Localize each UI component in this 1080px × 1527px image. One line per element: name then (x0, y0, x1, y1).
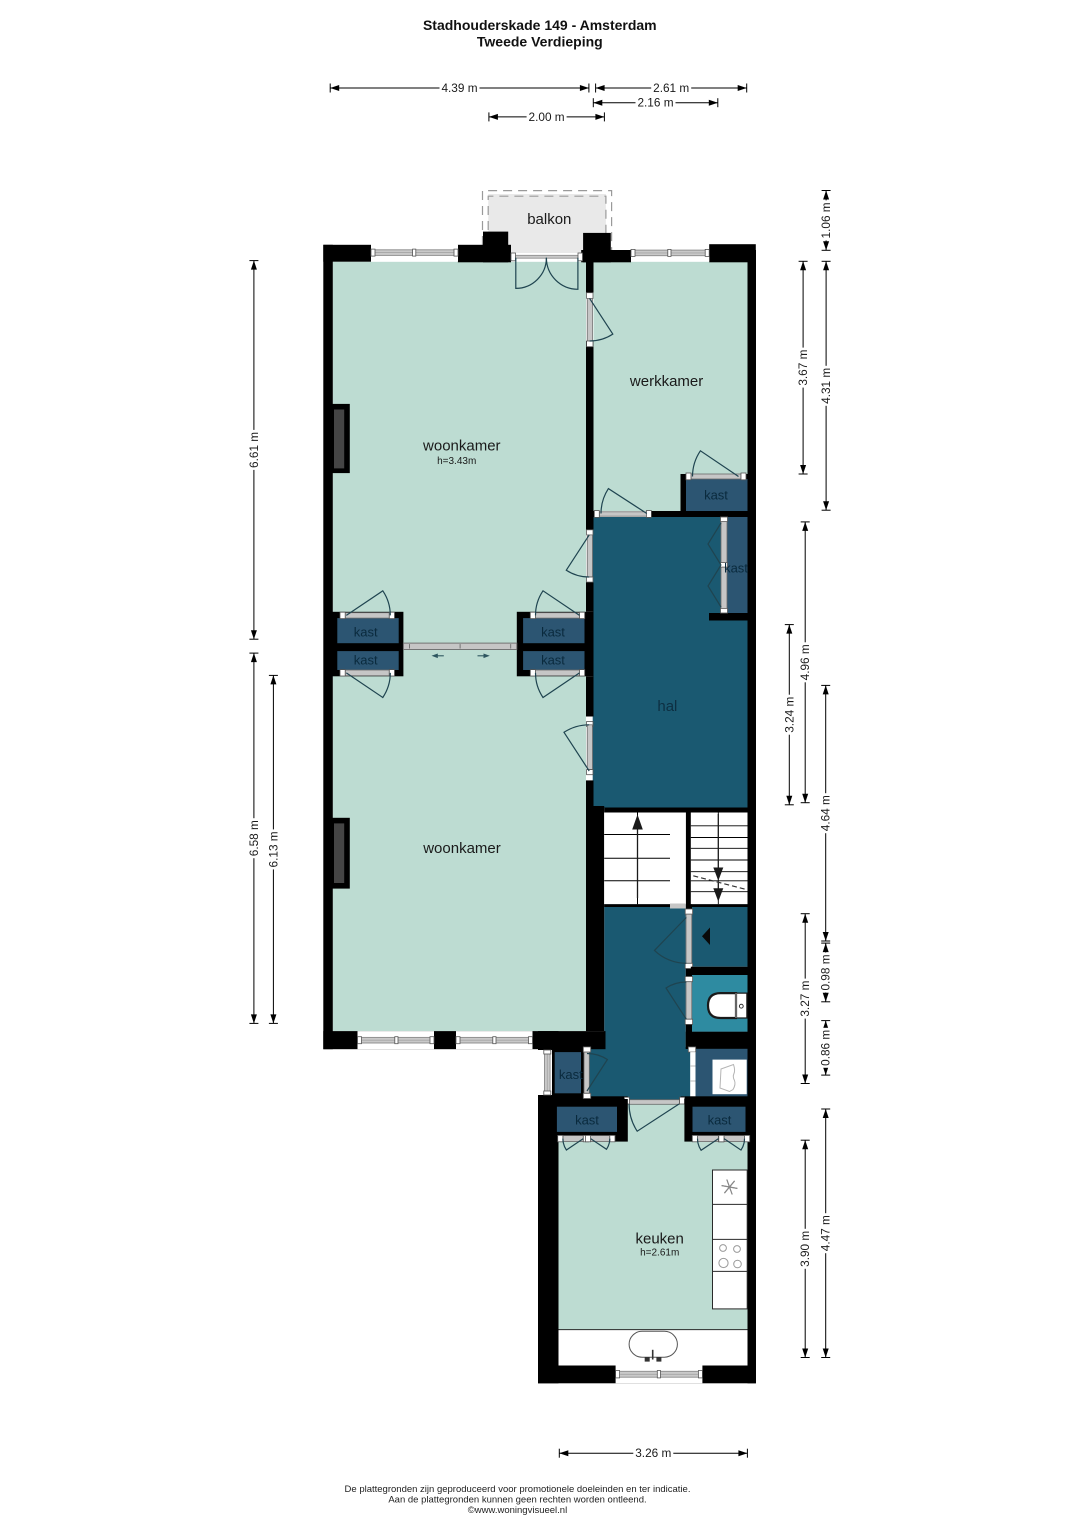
svg-text:kast: kast (354, 625, 378, 640)
svg-text:3.90 m: 3.90 m (798, 1231, 812, 1267)
svg-text:woonkamer: woonkamer (422, 840, 501, 857)
svg-text:kast: kast (724, 561, 748, 576)
svg-text:3.26 m: 3.26 m (635, 1446, 671, 1460)
svg-text:2.00 m: 2.00 m (529, 110, 565, 124)
svg-text:6.13 m: 6.13 m (266, 831, 280, 867)
svg-text:6.58 m: 6.58 m (247, 820, 261, 856)
svg-text:4.96 m: 4.96 m (798, 644, 812, 680)
svg-text:kast: kast (541, 625, 565, 640)
svg-text:Aan de plattegronden kunnen ge: Aan de plattegronden kunnen geen rechten… (388, 1495, 646, 1506)
svg-text:De plattegronden zijn geproduc: De plattegronden zijn geproduceerd voor … (345, 1484, 691, 1495)
svg-text:kast: kast (708, 1113, 732, 1128)
svg-text:©www.woningvisueel.nl: ©www.woningvisueel.nl (468, 1505, 567, 1516)
svg-text:3.27 m: 3.27 m (798, 980, 812, 1016)
svg-text:2.61 m: 2.61 m (653, 81, 689, 95)
svg-text:Stadhouderskade 149 - Amsterda: Stadhouderskade 149 - Amsterdam (423, 17, 657, 33)
svg-text:woonkamer: woonkamer (422, 438, 501, 455)
svg-text:0.98 m: 0.98 m (819, 954, 833, 990)
svg-text:3.67 m: 3.67 m (796, 349, 810, 385)
svg-text:3.24 m: 3.24 m (782, 697, 796, 733)
svg-text:0.86 m: 0.86 m (819, 1030, 833, 1066)
svg-text:hal: hal (657, 698, 677, 715)
svg-text:keuken: keuken (636, 1231, 684, 1248)
svg-text:h=3.43m: h=3.43m (437, 456, 476, 467)
svg-text:h=2.61m: h=2.61m (640, 1248, 679, 1259)
svg-text:kast: kast (541, 653, 565, 668)
svg-text:werkkamer: werkkamer (629, 373, 703, 390)
svg-text:balkon: balkon (527, 211, 571, 228)
svg-text:4.47 m: 4.47 m (819, 1215, 833, 1251)
svg-text:4.39 m: 4.39 m (441, 81, 477, 95)
svg-text:kast: kast (575, 1113, 599, 1128)
svg-text:Tweede Verdieping: Tweede Verdieping (477, 34, 603, 50)
svg-text:4.64 m: 4.64 m (819, 795, 833, 831)
svg-text:4.31 m: 4.31 m (819, 368, 833, 404)
svg-text:6.61 m: 6.61 m (247, 432, 261, 468)
svg-text:2.16 m: 2.16 m (637, 96, 673, 110)
svg-text:kast: kast (704, 488, 728, 503)
svg-text:1.06 m: 1.06 m (819, 202, 833, 238)
svg-text:kast: kast (354, 653, 378, 668)
svg-text:kast: kast (559, 1067, 583, 1082)
